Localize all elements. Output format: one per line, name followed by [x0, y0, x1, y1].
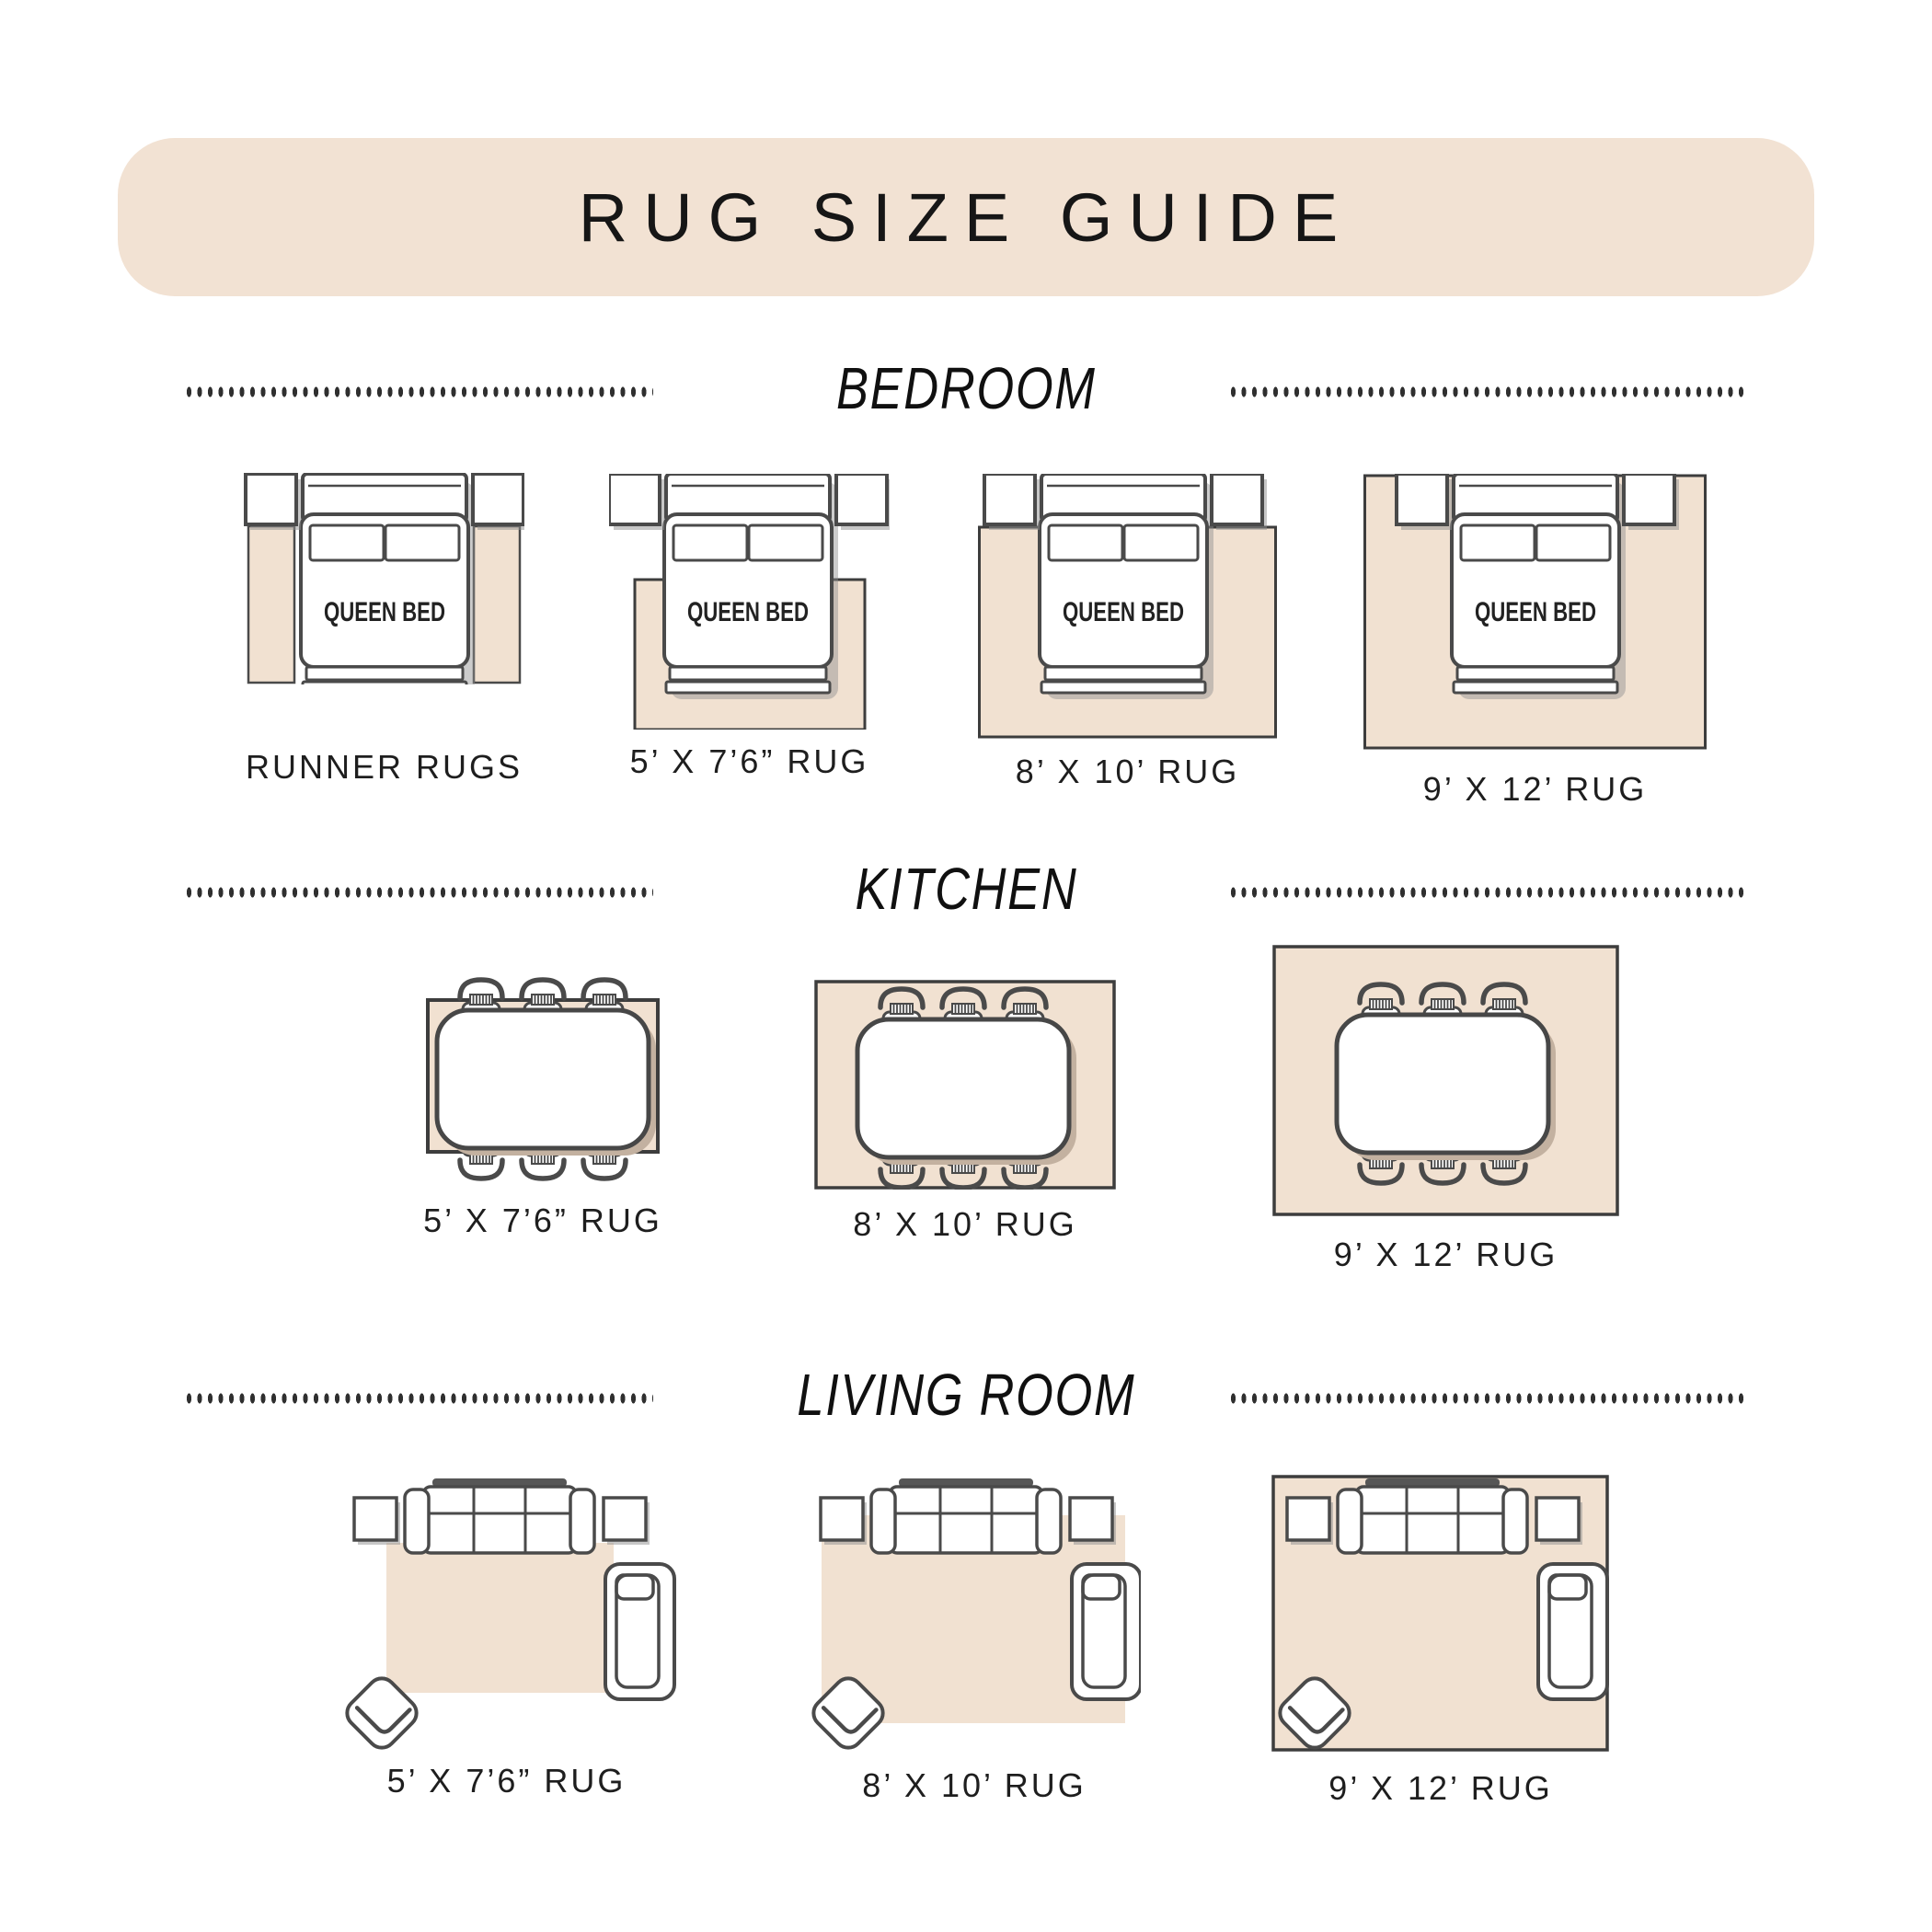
- rug-size-label: RUNNER RUGS: [244, 748, 524, 787]
- bedroom-runner-illustration: [244, 473, 524, 684]
- living-9x12-illustration: [1271, 1473, 1610, 1754]
- rug-size-label: 5’ X 7’6” RUG: [337, 1762, 676, 1800]
- page-title: RUG SIZE GUIDE: [579, 178, 1353, 257]
- bedroom-8x10-diagram: 8’ X 10’ RUG: [978, 474, 1277, 791]
- runner-rug-right: [474, 526, 520, 683]
- living-9x12-diagram: 9’ X 12’ RUG: [1271, 1473, 1610, 1808]
- bedroom-5x76-illustration: [609, 474, 890, 730]
- rug-size-label: 8’ X 10’ RUG: [978, 753, 1277, 791]
- rug-size-label: 5’ X 7’6” RUG: [609, 742, 890, 781]
- rug-size-label: 9’ X 12’ RUG: [1363, 770, 1707, 809]
- bedroom-runner-diagram: RUNNER RUGS: [244, 473, 524, 787]
- kitchen-8x10-diagram: 8’ X 10’ RUG: [814, 980, 1116, 1244]
- living-8x10-diagram: 8’ X 10’ RUG: [808, 1473, 1141, 1805]
- living-8x10-illustration: [808, 1473, 1141, 1754]
- kitchen-8x10-illustration: [814, 980, 1116, 1190]
- area-rug: [386, 1543, 614, 1693]
- rug-size-label: 8’ X 10’ RUG: [814, 1205, 1116, 1244]
- kitchen-9x12-diagram: 9’ X 12’ RUG: [1272, 945, 1619, 1274]
- rug-size-label: 9’ X 12’ RUG: [1271, 1769, 1610, 1808]
- runner-rug-left: [248, 526, 294, 683]
- kitchen-5x76-illustration: [423, 977, 662, 1181]
- rug-size-label: 8’ X 10’ RUG: [808, 1766, 1141, 1805]
- bedroom-8x10-illustration: [978, 474, 1277, 739]
- kitchen-9x12-illustration: [1272, 945, 1619, 1216]
- living-5x76-diagram: 5’ X 7’6” RUG: [337, 1473, 676, 1800]
- divider-dots-right: [1228, 385, 1748, 398]
- rug-size-guide-page: QUEEN BED: [0, 0, 1932, 1932]
- bedroom-5x76-diagram: 5’ X 7’6” RUG: [609, 474, 890, 781]
- bedroom-9x12-diagram: 9’ X 12’ RUG: [1363, 474, 1707, 809]
- kitchen-5x76-diagram: 5’ X 7’6” RUG: [423, 977, 662, 1240]
- bedroom-9x12-illustration: [1363, 474, 1707, 750]
- divider-dots-right: [1228, 1392, 1748, 1405]
- divider-dots-right: [1228, 886, 1748, 899]
- rug-size-label: 5’ X 7’6” RUG: [423, 1202, 662, 1240]
- rug-size-label: 9’ X 12’ RUG: [1272, 1236, 1619, 1274]
- living-5x76-illustration: [337, 1473, 676, 1754]
- header-banner: RUG SIZE GUIDE: [118, 138, 1814, 296]
